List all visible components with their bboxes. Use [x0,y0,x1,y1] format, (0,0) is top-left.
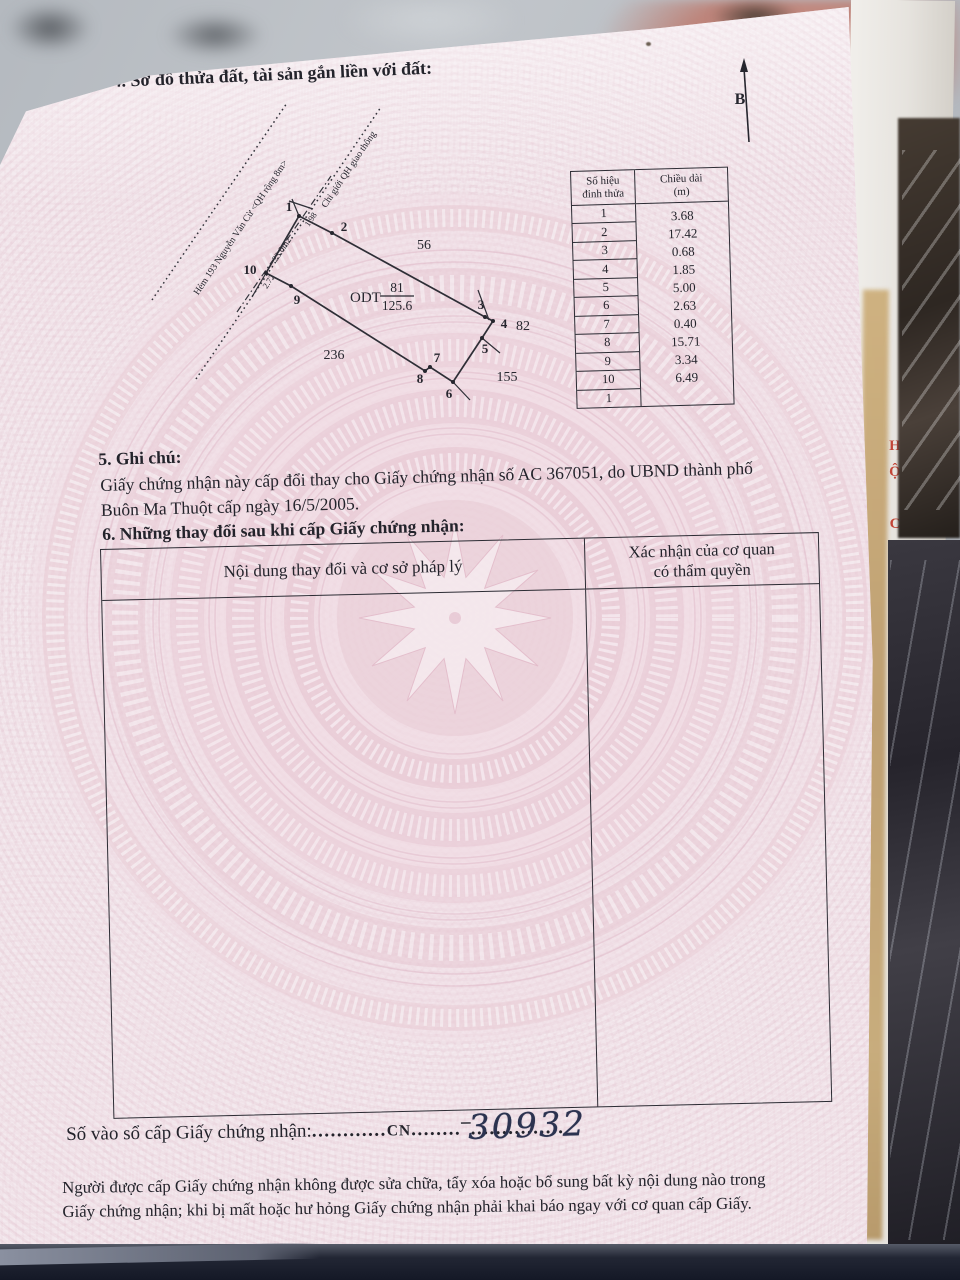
col2-header: Chiều dài [660,172,703,186]
road-label-1: Hẻm 193 Nguyễn Văn Cừ <QH rộng 8m> [191,158,290,297]
handwritten-serial-number: 30932 [467,1104,586,1148]
north-label: B [735,91,746,108]
svg-text:81: 81 [390,280,404,295]
vertex-id-column: 1 2 3 4 5 6 7 8 9 10 1 [572,204,642,408]
serial-number-line: Số vào sổ cấp Giấy chứng nhận:..........… [66,1115,687,1168]
serial-prefix: CN [387,1122,412,1139]
svg-text:3: 3 [478,297,485,312]
changes-confirm-cell [586,584,831,1106]
svg-text:82: 82 [516,319,530,334]
changes-table: Nội dung thay đổi và cơ sở pháp lý Xác n… [100,532,832,1119]
vertex-length-table: Số hiệu đỉnh thửa Chiều dài (m) 1 2 3 4 … [570,167,735,409]
changes-content-cell [102,590,598,1118]
edge-length-column: 3.68 17.42 0.68 1.85 5.00 2.63 0.40 15.7… [636,202,734,406]
photo-of-land-certificate: HỘ CƯ M T [0,0,960,1280]
svg-text:1: 1 [286,199,293,214]
vertex-id: 1 [572,204,635,224]
svg-text:8: 8 [417,371,424,386]
svg-text:2: 2 [341,219,348,234]
road-label-2: Chỉ giới QH giao thông [320,130,379,210]
svg-text:4: 4 [501,316,508,331]
svg-text:56: 56 [417,238,431,253]
footer-warning-note: Người được cấp Giấy chứng nhận không đượ… [62,1166,863,1223]
changes-col2-header: Xác nhận của cơ quan có thẩm quyền [585,533,819,588]
plastic-sheen-lower [890,560,960,1240]
svg-text:9: 9 [294,292,301,307]
svg-text:10: 10 [244,262,257,277]
svg-text:6: 6 [446,386,453,401]
svg-text:7: 7 [434,350,441,365]
svg-text:155: 155 [497,370,518,385]
svg-text:ODT: ODT [350,290,381,306]
svg-text:236: 236 [324,348,345,363]
section5-title: 5. Ghi chú: [98,447,182,470]
vertex-table-header: Số hiệu đỉnh thửa Chiều dài (m) [571,168,728,206]
certificate-page: 4. Sơ đồ thửa đất, tài sản gắn liền với … [0,0,960,1280]
parcel-area-label: ODT 81 125.6 [350,280,414,313]
col1-header: Số hiệu [586,174,620,188]
serial-label: Số vào sổ cấp Giấy chứng nhận: [66,1121,312,1145]
north-arrow: B [735,58,749,142]
adjacent-parcel-labels: 56 82 155 236 [324,238,531,385]
plastic-sheen [902,150,960,510]
svg-text:5: 5 [482,341,489,356]
svg-text:125.6: 125.6 [382,298,413,313]
